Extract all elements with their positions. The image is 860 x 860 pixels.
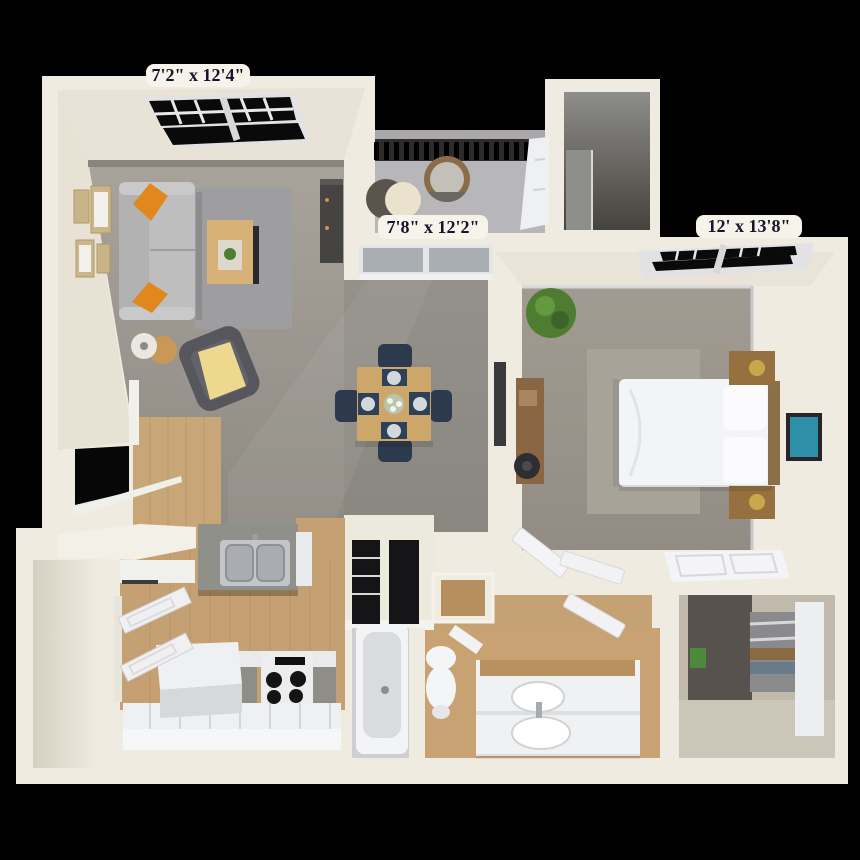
svg-text:7'2" x 12'4": 7'2" x 12'4" xyxy=(152,65,245,85)
svg-text:7'8" x 12'2": 7'8" x 12'2" xyxy=(387,217,480,237)
svg-text:12' x 13'8": 12' x 13'8" xyxy=(708,216,791,236)
